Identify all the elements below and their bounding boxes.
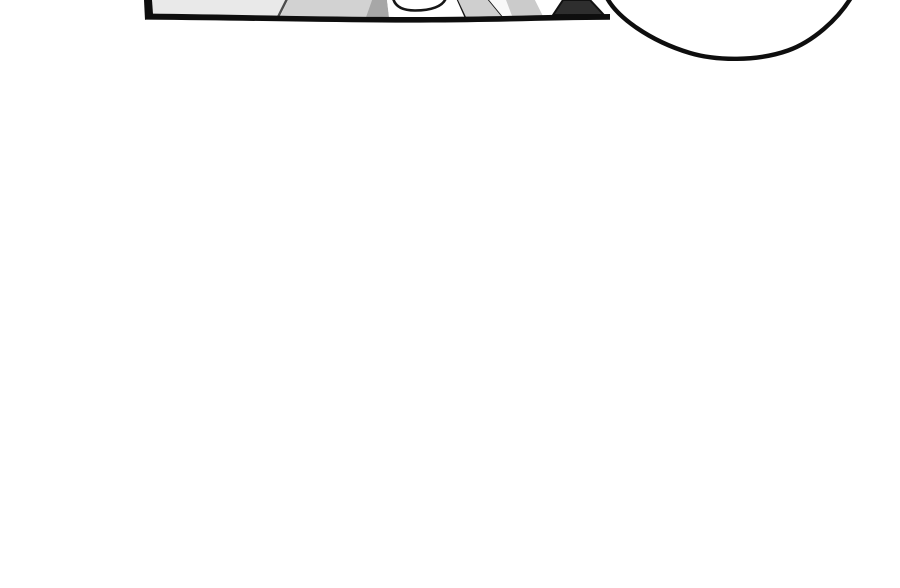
speech-bubble (606, 0, 852, 59)
panel-bottom-fragment (144, 0, 610, 23)
dark-wedge (553, 0, 604, 15)
webtoon-page (0, 0, 900, 588)
comic-artwork (0, 0, 900, 588)
floor-panel-mid (280, 0, 372, 17)
